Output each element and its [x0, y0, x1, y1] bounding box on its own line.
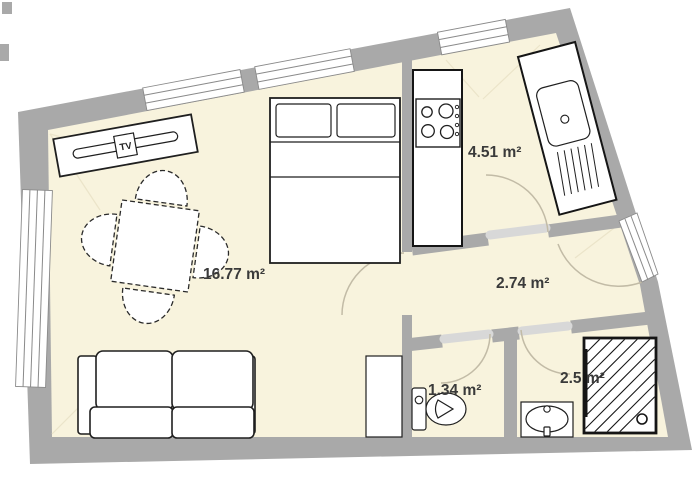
hallway-label: 2.74 m²	[496, 275, 549, 292]
dining-table	[111, 200, 200, 292]
wall-hall-bath	[571, 318, 650, 327]
wall-living-wc	[402, 315, 412, 437]
wall-hall-wc-a	[406, 341, 442, 345]
sofa	[78, 351, 255, 438]
sofa-seat-right	[172, 407, 254, 438]
floor-plan-canvas: TV	[0, 0, 700, 500]
toilet-tank	[412, 388, 426, 430]
pillow-left	[276, 104, 331, 137]
sofa-back-left	[96, 351, 173, 410]
sofa-seat-left	[90, 407, 173, 438]
wall-living-kitchen	[402, 58, 412, 252]
wc-door-threshold	[444, 334, 489, 339]
bathroom-label: 2.5 m²	[560, 370, 605, 387]
double-bed	[270, 98, 400, 263]
stove-icon	[416, 99, 460, 147]
left-window	[16, 190, 53, 388]
kitchen-counter-stove	[413, 70, 462, 246]
washbasin	[521, 402, 573, 437]
shower-drain	[637, 414, 647, 424]
wall-stub-top-left	[2, 2, 12, 14]
kitchen-label: 4.51 m²	[468, 144, 521, 161]
pillow-right	[337, 104, 395, 137]
floor-plan-page: TV	[0, 0, 700, 500]
sofa-back-right	[172, 351, 253, 410]
bathroom-door-threshold	[522, 326, 568, 331]
wall-stub-left	[0, 44, 9, 61]
living-room-label: 16.77 m²	[203, 266, 265, 283]
wall-wc-bath	[504, 333, 517, 437]
wc-label: 1.34 m²	[428, 382, 481, 399]
wardrobe	[366, 356, 402, 437]
